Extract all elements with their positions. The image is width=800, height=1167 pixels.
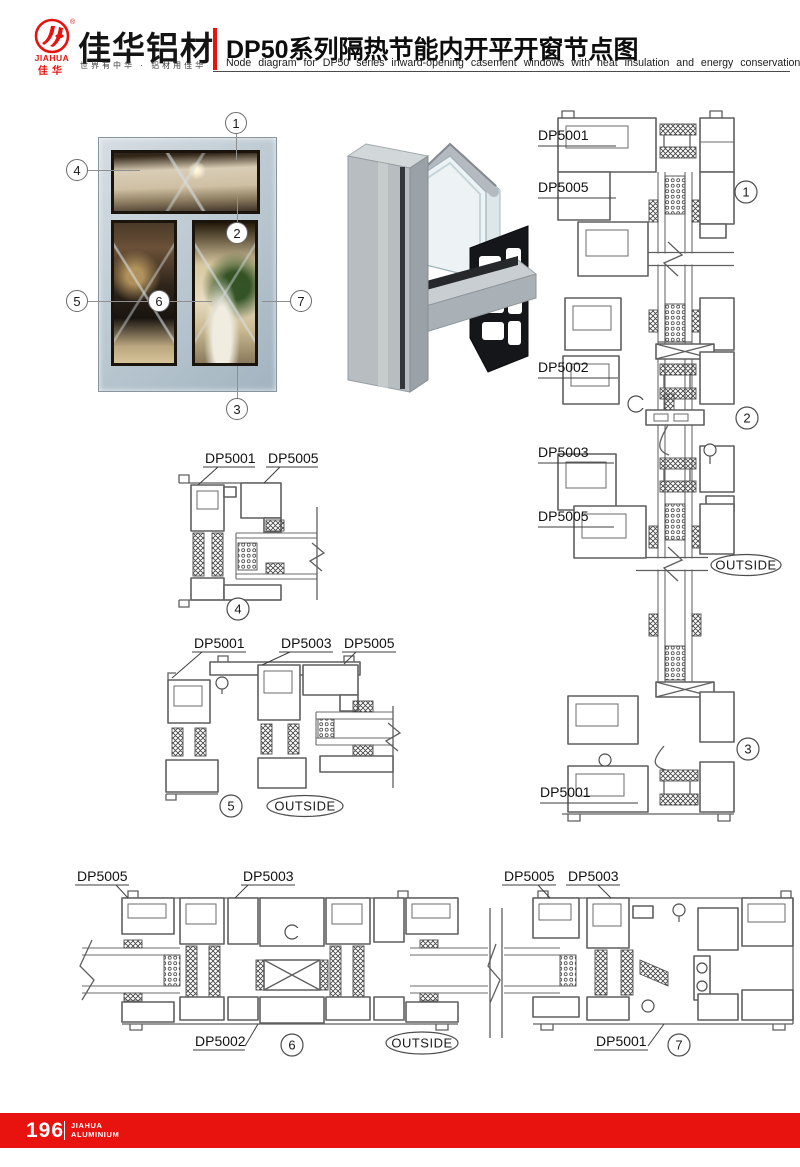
outside-label: OUTSIDE xyxy=(715,558,776,573)
marker-7-text: 7 xyxy=(675,1038,682,1053)
detail-5-drawing: DP5001 DP5003 DP5005 5 OUTSIDE xyxy=(148,628,448,823)
label-dp5001: DP5001 xyxy=(194,635,245,651)
footer-brand-line2: ALUMINIUM xyxy=(71,1131,119,1140)
callout-5: 5 xyxy=(66,290,88,312)
callout-6: 6 xyxy=(148,290,170,312)
window-photo: 1 2 3 4 5 6 7 xyxy=(52,108,312,420)
marker-2: 2 xyxy=(743,411,750,426)
marker-3: 3 xyxy=(744,742,751,757)
callout-2: 2 xyxy=(226,222,248,244)
outside-label: OUTSIDE xyxy=(274,799,335,814)
callout-3: 3 xyxy=(226,398,248,420)
callout-line-4 xyxy=(88,170,140,171)
label-dp5003: DP5003 xyxy=(538,444,589,460)
footer-divider xyxy=(64,1121,65,1140)
right-casement-pane xyxy=(192,220,258,366)
profile-3d-render xyxy=(322,128,532,413)
page-subtitle: Node diagram for DP50 series inward-open… xyxy=(226,57,788,69)
marker-4-text: 4 xyxy=(234,602,241,617)
label-dp5001: DP5001 xyxy=(538,127,589,143)
page-number: 196 xyxy=(26,1119,64,1143)
catalog-page: ® JIAHUA 佳华 佳华铝材 世界有中华 · 铝材用佳华 DP50系列隔热节… xyxy=(0,0,800,1167)
callout-1: 1 xyxy=(225,112,247,134)
vertical-section-drawing: DP5001 DP5005 DP5002 DP5003 DP5005 DP500… xyxy=(538,106,793,826)
detail-4-drawing: DP5001 DP5005 4 xyxy=(158,443,383,625)
outside-label: OUTSIDE xyxy=(391,1036,452,1051)
label-dp5003: DP5003 xyxy=(281,635,332,651)
callout-line-1 xyxy=(236,134,237,160)
label-dp5003-left: DP5003 xyxy=(243,868,294,884)
label-dp5005: DP5005 xyxy=(268,450,319,466)
label-dp5001-2: DP5001 xyxy=(540,784,591,800)
callout-4: 4 xyxy=(66,159,88,181)
label-dp5001: DP5001 xyxy=(596,1033,647,1049)
marker-1: 1 xyxy=(742,185,749,200)
label-dp5005-left: DP5005 xyxy=(77,868,128,884)
jiahua-logo-icon: ® xyxy=(28,16,78,56)
title-divider xyxy=(213,28,217,70)
label-dp5002: DP5002 xyxy=(538,359,589,375)
window-frame xyxy=(98,137,277,392)
label-dp5005-2: DP5005 xyxy=(538,508,589,524)
header-rule xyxy=(213,71,790,72)
marker-5-text: 5 xyxy=(227,799,234,814)
callout-line-2 xyxy=(237,195,238,222)
brand-slogan: 世界有中华 · 铝材用佳华 xyxy=(80,60,206,71)
detail-5-profiles xyxy=(166,656,400,800)
label-dp5005: DP5005 xyxy=(344,635,395,651)
bottom-section-drawing: DP5005 DP5003 DP5002 DP5005 DP5003 DP500… xyxy=(68,856,798,1066)
transom-profile xyxy=(558,298,734,512)
label-dp5005-right: DP5005 xyxy=(504,868,555,884)
logo-brand-cn: 佳华 xyxy=(24,62,80,77)
label-dp5002: DP5002 xyxy=(195,1033,246,1049)
footer-brand: JIAHUA ALUMINIUM xyxy=(71,1122,119,1139)
callout-line-3 xyxy=(237,366,238,398)
marker-6-text: 6 xyxy=(288,1038,295,1053)
callout-line-7 xyxy=(262,301,290,302)
callout-line-5 xyxy=(88,301,148,302)
sill-frame-profile xyxy=(562,682,734,821)
detail-4-profiles xyxy=(179,475,324,607)
footer-bar: 196 JIAHUA ALUMINIUM xyxy=(0,1113,800,1148)
callout-line-6 xyxy=(170,301,212,302)
logo-reg-mark: ® xyxy=(70,18,76,26)
label-dp5001: DP5001 xyxy=(205,450,256,466)
callout-7: 7 xyxy=(290,290,312,312)
label-dp5003-right: DP5003 xyxy=(568,868,619,884)
label-dp5005: DP5005 xyxy=(538,179,589,195)
detail-4-labels: DP5001 DP5005 xyxy=(198,450,319,485)
